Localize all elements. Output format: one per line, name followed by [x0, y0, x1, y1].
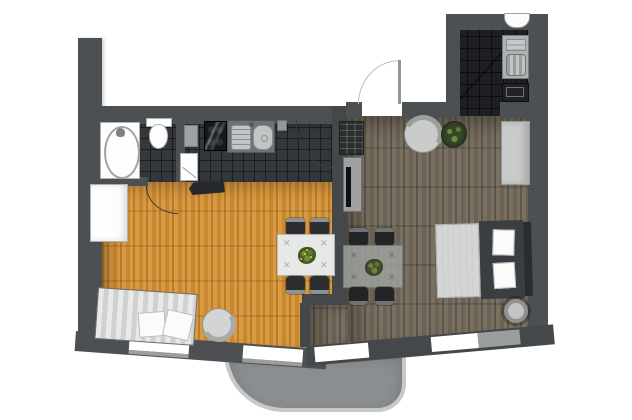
tv-sideboard: [343, 157, 362, 212]
cabinet-door-mark: [182, 167, 196, 178]
stove: [204, 121, 227, 151]
table-plant: [298, 247, 316, 264]
sink-basin-left: [231, 125, 251, 150]
sink-faucet-icon: [249, 122, 254, 127]
entry-door-arc: [358, 60, 400, 104]
bathtub-surround: [100, 122, 140, 179]
placemat-cutlery: ✕: [388, 252, 396, 261]
kitchen-gray-panel: [184, 125, 198, 147]
living-wardrobe: [90, 184, 128, 242]
utility-bottom-wall: [500, 102, 532, 118]
placemat-cutlery: ✕: [320, 262, 328, 271]
double-bed: [435, 220, 533, 300]
entry-door-panel: [398, 60, 401, 104]
bed-pillow-2: [493, 262, 517, 289]
kitchen-white-cabinet: [180, 153, 198, 181]
bedroom-armchair: [405, 117, 441, 152]
round-stool: [504, 299, 528, 323]
dining-table-bedroom: ✕ ✕ ✕ ✕: [343, 245, 403, 288]
sink-drain-icon: [261, 135, 268, 142]
bed-duvet: [435, 223, 481, 298]
floor-plan-canvas: ✕ ✕ ✕ ✕ ✕ ✕ ✕ ✕: [0, 0, 632, 420]
hall-top-wall-left: [346, 102, 362, 118]
placemat-cutlery: ✕: [350, 252, 358, 261]
utility-appliance-handle: [506, 87, 524, 97]
hall-shelf-unit: [339, 121, 364, 155]
tub-chair: [203, 309, 234, 340]
washing-machine: [502, 35, 529, 79]
bed-pillow-1: [492, 229, 515, 256]
placemat-cutlery: ✕: [283, 262, 291, 271]
dining1-chair-bottom-right: [310, 276, 329, 294]
lower-divider-wall: [300, 303, 310, 347]
toilet: [146, 118, 172, 150]
dining2-chair-bottom-left: [349, 287, 368, 305]
plant-flowers: [304, 253, 306, 255]
dining1-chair-bottom-left: [286, 276, 305, 294]
window-sill-3: [478, 329, 521, 348]
bathtub-faucet-icon: [116, 128, 125, 137]
kitchen-wall-switch: [277, 120, 287, 131]
window-bedroom-2: [431, 333, 479, 352]
placemat-cutlery: ✕: [388, 274, 396, 283]
placemat-cutlery: ✕: [350, 274, 358, 283]
placemat-cutlery: ✕: [320, 240, 328, 249]
sofa: [94, 287, 197, 346]
dining2-chair-top-right: [375, 228, 394, 246]
sofa-pillow-2: [162, 309, 194, 341]
sink-counter: [227, 120, 275, 153]
bedroom-wardrobe: [501, 121, 530, 185]
dining2-chair-top-left: [349, 228, 368, 246]
placemat-cutlery: ✕: [283, 240, 291, 249]
dining2-chair-bottom-right: [375, 287, 394, 305]
utility-appliance: [502, 83, 529, 102]
tv-screen: [346, 167, 351, 207]
washing-machine-lid: [506, 39, 526, 51]
dining-table-living: ✕ ✕ ✕ ✕: [277, 234, 335, 276]
toilet-bowl: [149, 124, 168, 149]
table-plant-dark: [365, 259, 383, 276]
washing-machine-drum: [506, 54, 526, 76]
window-bedroom-1: [314, 343, 369, 363]
